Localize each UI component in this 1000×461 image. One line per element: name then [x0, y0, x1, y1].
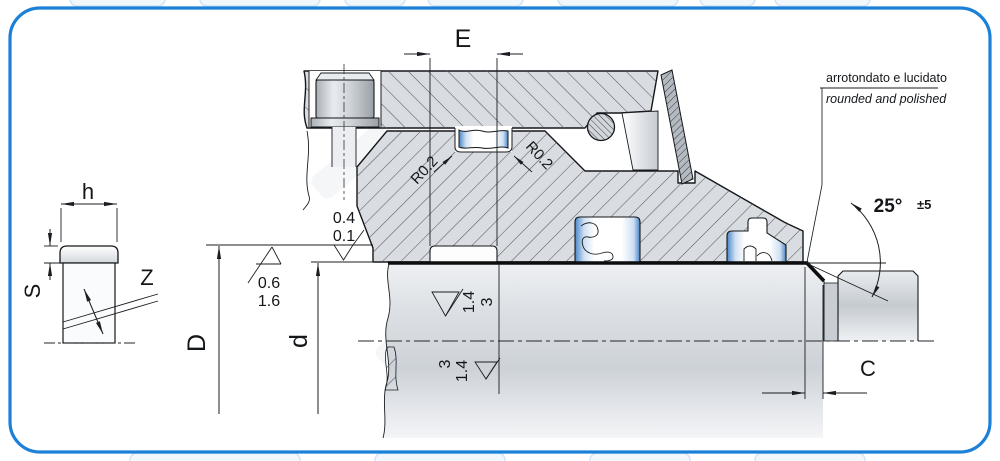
bolt-washer: [311, 118, 379, 127]
finish-groove-flank-bottom: 0.1: [333, 228, 355, 245]
dim-label-ring-cut: Z: [140, 265, 153, 290]
dim-label-ring-width: h: [82, 179, 94, 204]
bolt-head-chamfer: [316, 73, 374, 80]
finish-rod-bottom-second: 1.4: [454, 360, 471, 382]
rod-seal: [575, 217, 640, 262]
backup-ring: [430, 246, 497, 262]
finish-rod-top-second: 3: [479, 297, 496, 306]
dim-label-groove-diameter: D: [183, 334, 211, 352]
o-ring-hatch: [588, 114, 615, 141]
finish-groove-root-top: 0.6: [258, 275, 280, 292]
ring-body: [63, 263, 115, 343]
chamfer-angle-tolerance: ±5: [917, 197, 931, 212]
ring-cap: [60, 246, 118, 263]
technical-drawing-page: E h S Z D d C R0.2 R0.2 0.4 0.1 0.6 1.6 …: [0, 0, 1000, 461]
finish-groove-flank-top: 0.4: [333, 210, 355, 227]
chamfer-note-english: rounded and polished: [826, 92, 947, 106]
bolt-head: [316, 80, 374, 118]
dim-label-groove-width: E: [455, 25, 472, 53]
finish-rod-top-first: 1.4: [461, 291, 478, 313]
chamfer-note-italian: arrotondato e lucidato: [826, 71, 947, 85]
finish-groove-root-bottom: 1.6: [258, 293, 280, 310]
dim-label-rod-diameter: d: [285, 334, 313, 348]
dim-label-ring-thickness: S: [20, 284, 45, 299]
chamfer-angle-value: 25°: [874, 196, 903, 217]
rod-relief-groove: [824, 283, 838, 341]
face-seal: [459, 130, 508, 148]
seal-installation-drawing: E h S Z D d C R0.2 R0.2 0.4 0.1 0.6 1.6 …: [0, 0, 1000, 461]
dim-label-chamfer-length: C: [860, 356, 876, 381]
face-seal-groove: [455, 126, 512, 152]
rod-body: [383, 264, 823, 438]
finish-rod-bottom-first: 3: [437, 359, 454, 368]
